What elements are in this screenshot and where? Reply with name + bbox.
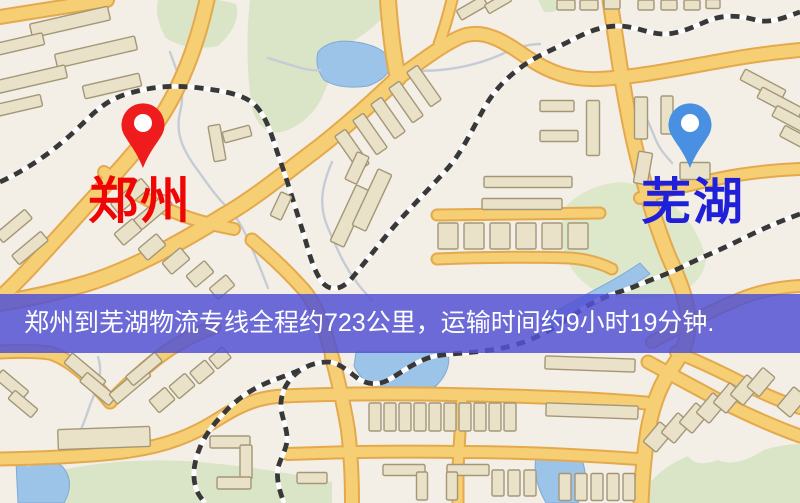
- building: [706, 0, 720, 9]
- route-info-banner: 郑州到芜湖物流专线全程约723公里，运输时间约9小时19分钟.: [0, 294, 800, 353]
- building: [516, 223, 536, 249]
- road: [437, 213, 600, 215]
- park-area: [265, 96, 303, 128]
- building: [369, 403, 381, 431]
- building: [508, 470, 520, 496]
- building: [482, 199, 562, 210]
- building: [568, 223, 588, 249]
- building: [447, 472, 458, 500]
- building: [429, 403, 441, 431]
- building: [474, 403, 486, 431]
- map-canvas[interactable]: [0, 0, 800, 503]
- building: [524, 470, 536, 496]
- building: [546, 403, 638, 419]
- building: [604, 0, 620, 9]
- building: [492, 470, 504, 496]
- building: [58, 426, 151, 449]
- building: [545, 356, 635, 372]
- building: [542, 223, 562, 249]
- building: [297, 473, 327, 484]
- building: [557, 0, 575, 10]
- building: [661, 0, 677, 10]
- building: [540, 101, 574, 112]
- building: [444, 403, 456, 431]
- building: [684, 0, 700, 10]
- building: [459, 403, 471, 431]
- building: [580, 0, 598, 10]
- route-info-text: 郑州到芜湖物流专线全程约723公里，运输时间约9小时19分钟.: [0, 294, 800, 353]
- building: [607, 474, 619, 501]
- building: [399, 403, 411, 431]
- building: [540, 131, 578, 142]
- building: [489, 403, 501, 431]
- building: [680, 163, 710, 180]
- building: [217, 477, 251, 489]
- building: [575, 474, 587, 501]
- building: [384, 403, 396, 431]
- map-screenshot: 郑州 芜湖 郑州到芜湖物流专线全程约723公里，运输时间约9小时19分钟.: [0, 0, 800, 503]
- building: [635, 97, 648, 139]
- building: [414, 403, 426, 431]
- building: [490, 223, 510, 249]
- building: [464, 223, 484, 249]
- building: [438, 223, 458, 249]
- building: [587, 101, 600, 156]
- building: [623, 474, 635, 501]
- building: [591, 474, 603, 501]
- building: [240, 445, 252, 479]
- building: [559, 474, 571, 501]
- building: [484, 177, 572, 188]
- building: [504, 403, 516, 431]
- building: [638, 0, 654, 10]
- building: [417, 472, 428, 500]
